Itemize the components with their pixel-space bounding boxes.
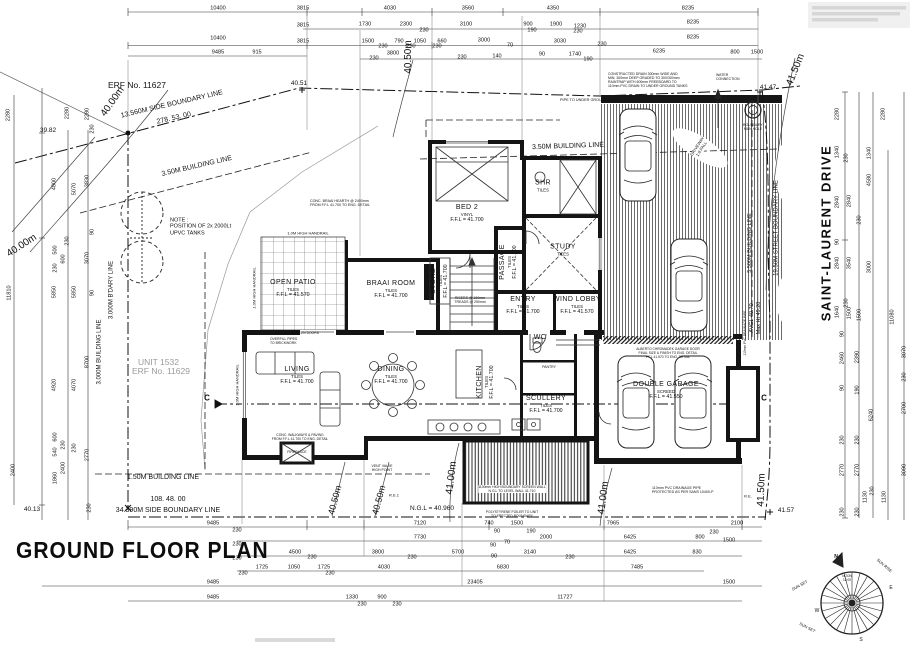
patio-tile-grid [261, 237, 345, 330]
fireplace [281, 443, 313, 463]
stairs [450, 258, 494, 330]
garage-door [603, 336, 733, 344]
erf-number-label: ERF No. 11627 [108, 80, 166, 90]
sofa [320, 372, 340, 426]
sofa [256, 352, 314, 374]
drying-yard [464, 441, 588, 503]
north-arrow [833, 553, 843, 567]
sink [527, 419, 540, 430]
sun-path-diagram [821, 553, 883, 634]
sink [512, 419, 525, 430]
garage-pier [728, 368, 758, 440]
plan-title: GROUND FLOOR PLAN [16, 538, 269, 564]
footer-faint-text [255, 638, 335, 642]
dining-table [372, 364, 414, 406]
street-name-label: SAINT-LAURENT DRIVE [819, 145, 834, 322]
unit-erf-label: ERF No. 11629 [132, 366, 190, 376]
basin [535, 172, 545, 182]
approval-stamp [808, 2, 910, 28]
kitchen-island [456, 350, 482, 398]
upvc-tanks [121, 192, 163, 283]
floor-plan-sheet: GROUND FLOOR PLAN ERF No. 11627 UNIT 153… [0, 0, 913, 646]
